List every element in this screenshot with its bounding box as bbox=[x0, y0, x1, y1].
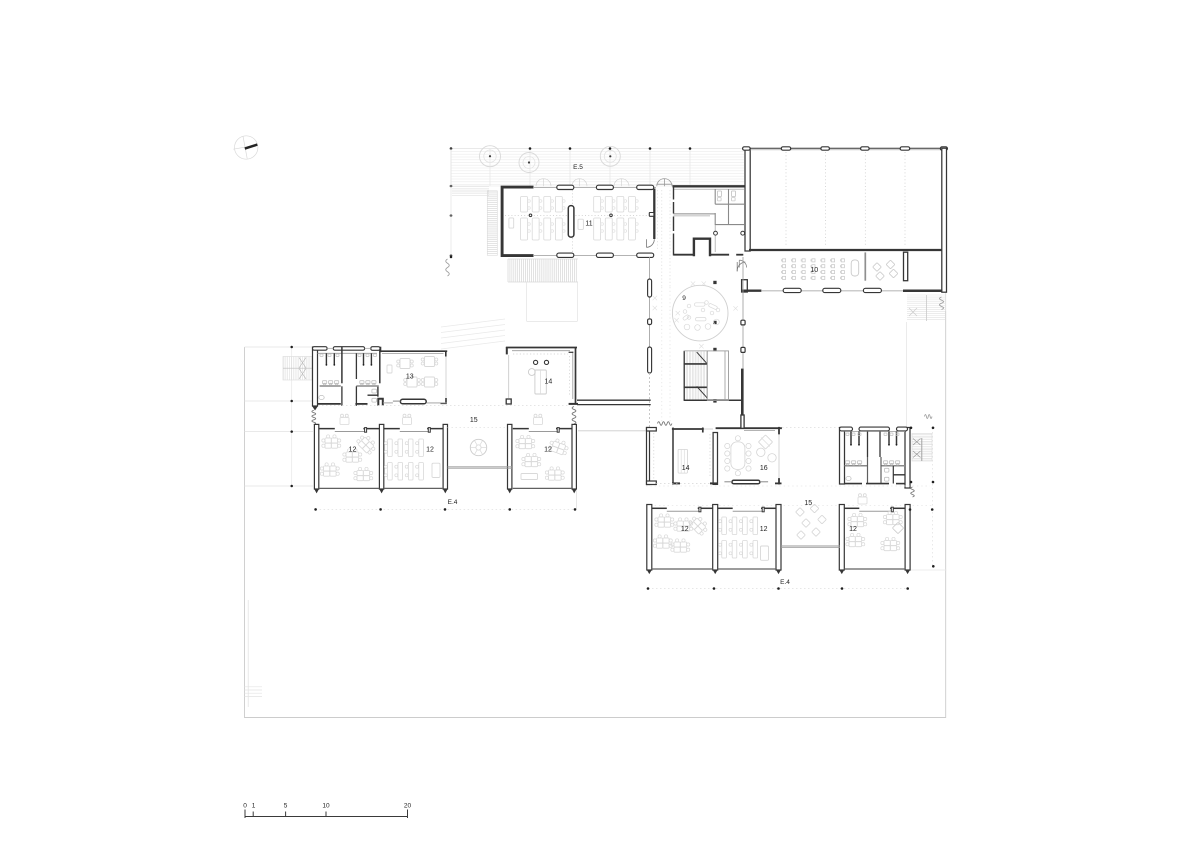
svg-text:12: 12 bbox=[681, 526, 689, 533]
svg-text:E.4: E.4 bbox=[448, 499, 458, 506]
svg-text:9: 9 bbox=[682, 295, 686, 302]
svg-text:16: 16 bbox=[760, 465, 768, 472]
svg-text:0: 0 bbox=[243, 803, 247, 810]
svg-text:5: 5 bbox=[284, 803, 288, 810]
svg-text:14: 14 bbox=[545, 378, 553, 385]
svg-text:12: 12 bbox=[760, 526, 768, 533]
svg-text:12: 12 bbox=[349, 447, 357, 454]
svg-text:15: 15 bbox=[470, 417, 478, 424]
svg-text:15: 15 bbox=[804, 500, 812, 507]
svg-text:13: 13 bbox=[406, 374, 414, 381]
svg-text:10: 10 bbox=[322, 803, 330, 810]
svg-text:12: 12 bbox=[426, 447, 434, 454]
svg-text:12: 12 bbox=[544, 446, 552, 453]
svg-text:20: 20 bbox=[404, 803, 412, 810]
svg-text:11: 11 bbox=[585, 221, 592, 228]
svg-text:12: 12 bbox=[849, 526, 857, 533]
svg-text:10: 10 bbox=[810, 267, 818, 274]
svg-text:E.4: E.4 bbox=[780, 579, 790, 586]
svg-text:1: 1 bbox=[252, 803, 256, 810]
svg-text:14: 14 bbox=[682, 465, 690, 472]
svg-text:E.5: E.5 bbox=[573, 164, 583, 171]
